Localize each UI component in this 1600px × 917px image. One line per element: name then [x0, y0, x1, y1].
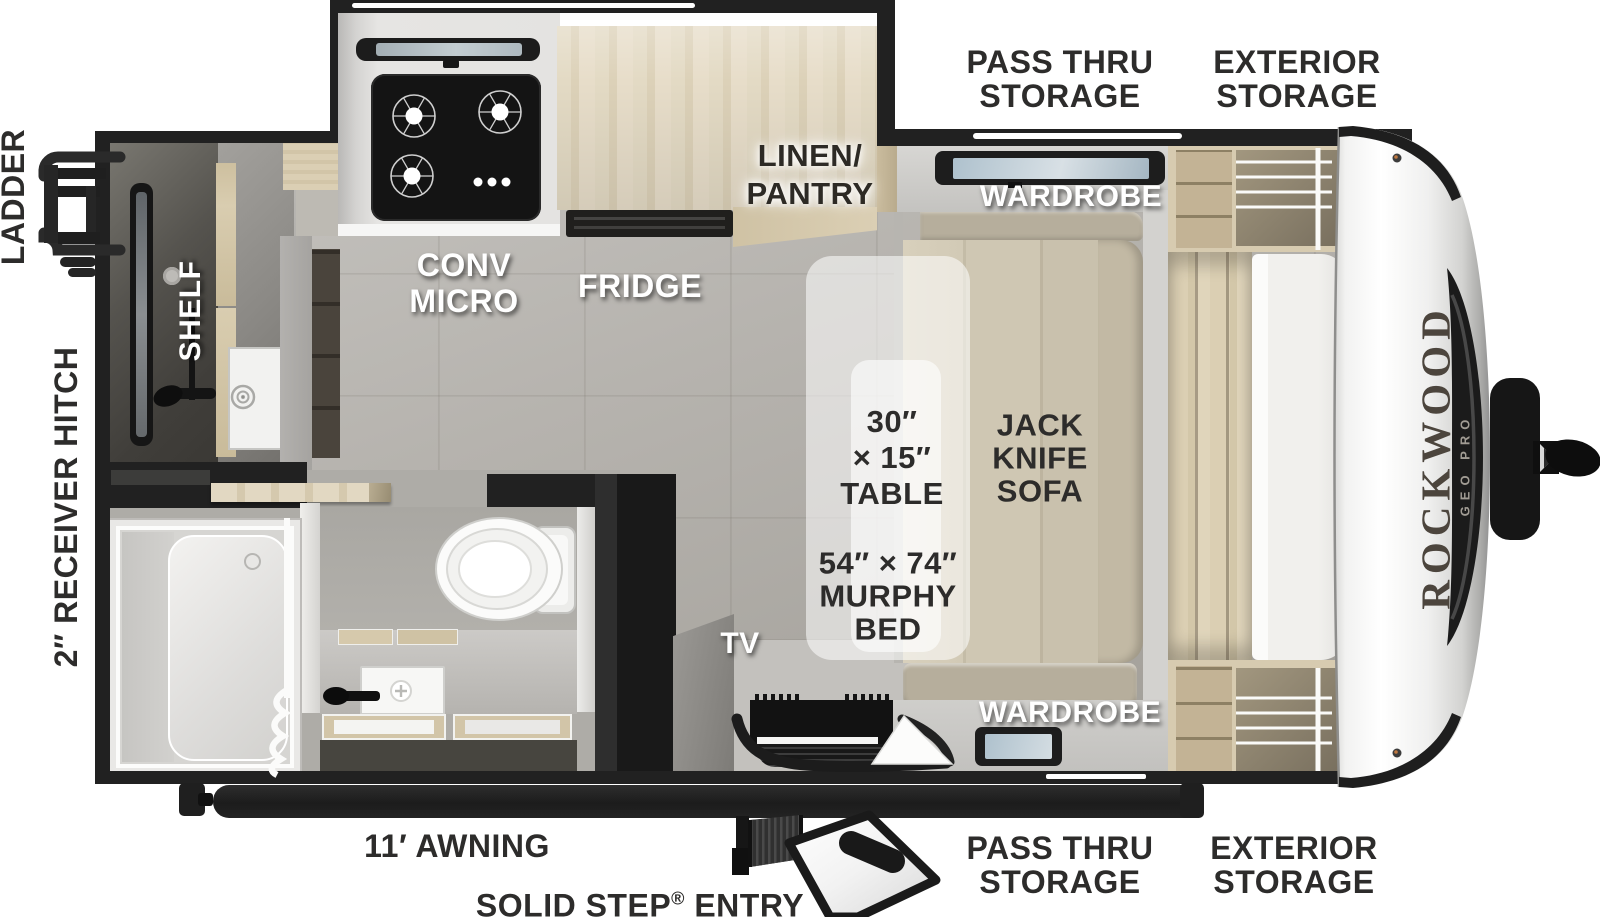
- svg-text:GEO PRO: GEO PRO: [1457, 414, 1472, 517]
- svg-text:ROCKWOOD: ROCKWOOD: [1412, 304, 1458, 609]
